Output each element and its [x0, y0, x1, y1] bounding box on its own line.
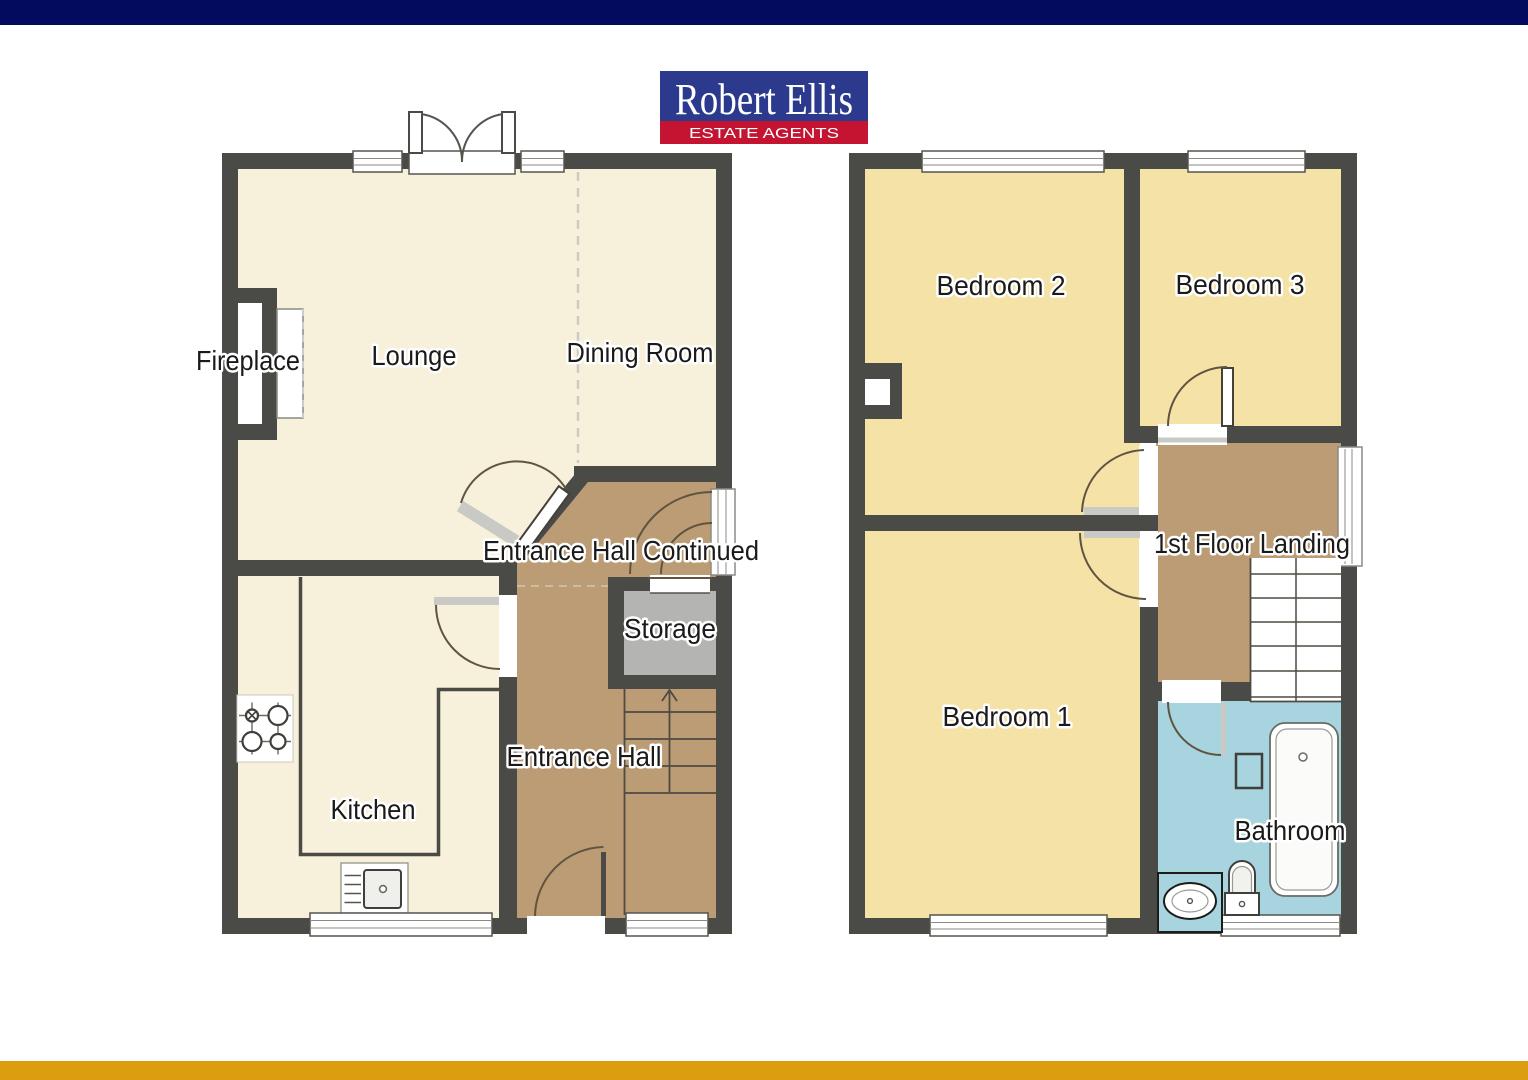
- svg-text:Robert Ellis: Robert Ellis: [675, 75, 853, 124]
- svg-text:Entrance Hall Continued: Entrance Hall Continued: [483, 535, 759, 566]
- svg-text:Fireplace: Fireplace: [196, 345, 300, 376]
- svg-text:Bedroom 3: Bedroom 3: [1176, 269, 1305, 300]
- svg-text:Kitchen: Kitchen: [331, 794, 416, 825]
- svg-text:ESTATE AGENTS: ESTATE AGENTS: [689, 125, 839, 142]
- svg-text:Storage: Storage: [624, 613, 716, 644]
- svg-text:Bedroom 1: Bedroom 1: [943, 701, 1072, 732]
- svg-text:Entrance Hall: Entrance Hall: [507, 741, 662, 772]
- svg-text:Bathroom: Bathroom: [1235, 815, 1346, 846]
- svg-text:Bedroom 2: Bedroom 2: [937, 270, 1066, 301]
- svg-text:Dining Room: Dining Room: [567, 337, 714, 368]
- svg-text:1st Floor Landing: 1st Floor Landing: [1154, 528, 1350, 559]
- svg-text:Lounge: Lounge: [372, 340, 457, 371]
